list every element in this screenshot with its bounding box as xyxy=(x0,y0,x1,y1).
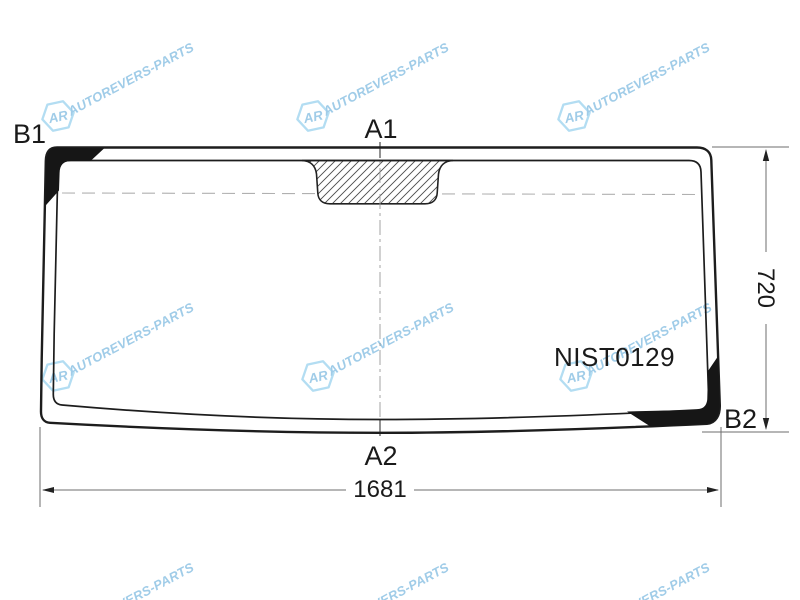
arrow-left-icon xyxy=(42,487,54,493)
label-b2: B2 xyxy=(724,406,757,433)
corner-mark-top-left xyxy=(45,148,104,207)
arrow-up-icon xyxy=(763,149,769,161)
windshield-drawing xyxy=(0,0,800,600)
dimension-height-value: 720 xyxy=(753,256,777,320)
windshield-diagram: AR AUTOREVERS-PARTS AR AUTOREVERS-PARTS … xyxy=(0,0,800,600)
label-a2: A2 xyxy=(360,443,402,470)
label-a1: A1 xyxy=(360,116,402,143)
arrow-right-icon xyxy=(707,487,719,493)
dimension-width-value: 1681 xyxy=(342,478,418,502)
label-b1: B1 xyxy=(13,121,46,148)
part-number: NIST0129 xyxy=(554,344,675,370)
arrow-down-icon xyxy=(763,418,769,430)
sensor-mount-hatch-area xyxy=(302,161,453,204)
